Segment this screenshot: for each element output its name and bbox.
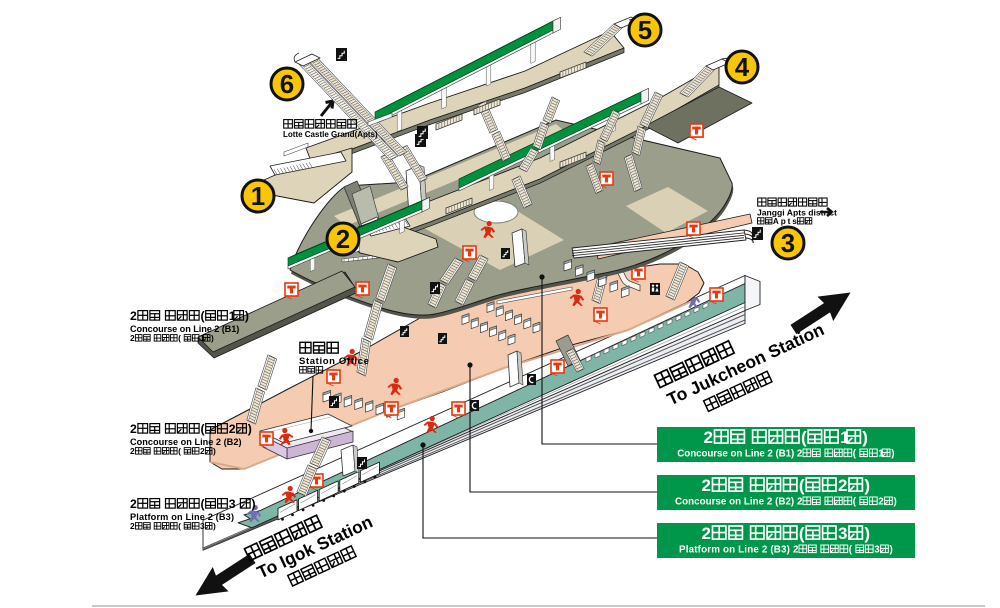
- svg-text:): ): [890, 545, 893, 556]
- svg-text:3: 3: [838, 524, 847, 543]
- svg-text:2: 2: [200, 446, 205, 456]
- svg-text:6: 6: [280, 71, 294, 99]
- svg-text:3: 3: [229, 497, 236, 511]
- svg-text:(: (: [799, 524, 805, 543]
- svg-text:Concourse on Line 2 (B1): Concourse on Line 2 (B1): [130, 324, 239, 334]
- svg-text:): ): [894, 497, 897, 508]
- svg-text:1: 1: [878, 449, 884, 460]
- svg-text:(: (: [799, 476, 805, 495]
- svg-text:2: 2: [130, 309, 137, 323]
- svg-text:Station Office: Station Office: [299, 356, 369, 367]
- svg-text:(: (: [201, 497, 206, 511]
- svg-text:): ): [211, 333, 214, 343]
- svg-text:Lotte Castle Grand(Apts): Lotte Castle Grand(Apts): [283, 130, 378, 139]
- svg-text:): ): [864, 524, 870, 543]
- svg-text:Concourse on Line 2 (B2) 2: Concourse on Line 2 (B2) 2: [675, 497, 803, 508]
- svg-text:2: 2: [702, 524, 711, 543]
- svg-text:1: 1: [840, 428, 849, 447]
- svg-text:2: 2: [130, 333, 135, 343]
- svg-text:2: 2: [878, 497, 884, 508]
- svg-text:2: 2: [130, 422, 137, 436]
- svg-text:Concourse on Line 2 (B1) 2: Concourse on Line 2 (B1) 2: [677, 449, 803, 460]
- svg-text:): ): [864, 476, 870, 495]
- svg-text:(: (: [178, 333, 181, 343]
- svg-text:2: 2: [336, 226, 350, 254]
- svg-text:): ): [248, 422, 252, 436]
- svg-text:2: 2: [130, 521, 135, 531]
- svg-text:): ): [862, 428, 868, 447]
- svg-text:(: (: [178, 446, 181, 456]
- svg-text:2: 2: [838, 476, 847, 495]
- svg-text:): ): [245, 309, 249, 323]
- svg-text:Concourse on Line 2 (B2): Concourse on Line 2 (B2): [130, 437, 242, 447]
- svg-text:(: (: [801, 428, 807, 447]
- svg-text:): ): [213, 446, 216, 456]
- svg-text:2: 2: [130, 446, 135, 456]
- svg-text:3: 3: [200, 521, 205, 531]
- svg-text:2: 2: [702, 476, 711, 495]
- svg-text:3: 3: [781, 230, 795, 258]
- svg-text:Apts: Apts: [773, 217, 797, 226]
- svg-text:2: 2: [130, 497, 137, 511]
- svg-text:(: (: [201, 422, 206, 436]
- svg-text:1: 1: [251, 183, 265, 211]
- svg-text:2: 2: [229, 422, 236, 436]
- svg-text:5: 5: [638, 17, 652, 45]
- svg-text:): ): [252, 497, 256, 511]
- svg-text:Platform on Line 2 (B3) 2: Platform on Line 2 (B3) 2: [679, 545, 799, 556]
- svg-text:): ): [891, 449, 894, 460]
- svg-text:(: (: [201, 309, 206, 323]
- svg-text:4: 4: [735, 54, 750, 82]
- svg-text:(: (: [178, 521, 181, 531]
- svg-text:2: 2: [704, 428, 713, 447]
- svg-text:3: 3: [874, 545, 880, 556]
- svg-text:): ): [213, 521, 216, 531]
- svg-text:Platform on Line 2 (B3): Platform on Line 2 (B3): [130, 512, 234, 522]
